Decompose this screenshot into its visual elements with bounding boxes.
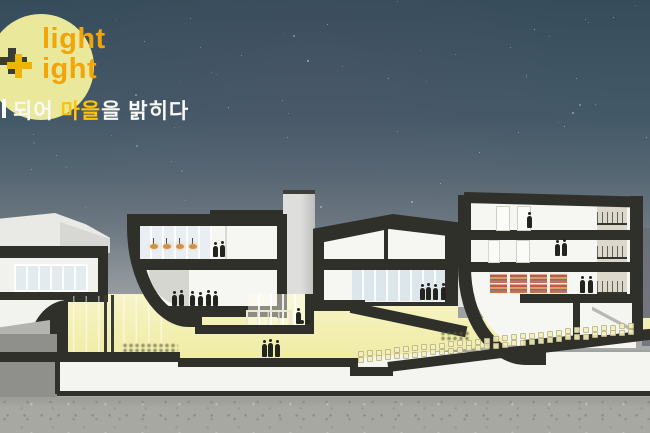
seat	[493, 336, 499, 342]
left-elevation-roof-band	[0, 246, 108, 258]
seat	[565, 334, 571, 340]
balcony-rail-1	[597, 212, 627, 225]
star	[342, 66, 343, 67]
building-d-door-4	[488, 240, 500, 263]
balcony-rail-3	[597, 281, 627, 294]
star	[282, 100, 283, 101]
arch-pier-dark	[0, 334, 57, 397]
star	[200, 47, 201, 48]
bookshelf	[509, 272, 528, 294]
star	[178, 33, 179, 34]
seat	[448, 341, 454, 347]
person-silhouette	[588, 280, 593, 293]
star	[572, 112, 574, 114]
star	[579, 104, 581, 106]
person-silhouette	[213, 295, 218, 306]
person-silhouette	[179, 294, 184, 306]
seat	[574, 327, 580, 333]
courtyard-upper-slab	[195, 325, 313, 334]
building-b-top-window-band	[140, 226, 212, 259]
seat	[484, 338, 490, 344]
star	[327, 24, 328, 25]
seat	[538, 338, 544, 344]
left-ground-slab	[0, 352, 180, 362]
building-c-mid-slab	[324, 259, 446, 270]
star	[288, 113, 289, 114]
concrete-ground	[0, 397, 650, 433]
seat	[475, 339, 481, 345]
tagline-prefix: 되어	[13, 100, 60, 123]
seat	[412, 352, 418, 358]
star	[455, 54, 456, 55]
pendant-lamp	[150, 244, 158, 249]
seat	[520, 333, 526, 339]
left-room-frame-2	[111, 295, 114, 353]
seat	[556, 330, 562, 336]
star	[420, 50, 421, 51]
person-silhouette	[275, 344, 280, 357]
seat	[583, 334, 589, 340]
seat	[628, 329, 634, 335]
seat	[592, 326, 598, 332]
star	[576, 78, 577, 79]
seat	[439, 349, 445, 355]
building-d-slab-2	[470, 262, 632, 272]
seat	[394, 347, 400, 353]
star	[397, 1, 398, 2]
plus-icon-yellow-v	[15, 54, 22, 78]
star	[216, 74, 217, 75]
seat	[421, 344, 427, 350]
seat	[430, 344, 436, 350]
person-silhouette	[220, 245, 225, 257]
person-silhouette	[198, 296, 203, 306]
building-d-door-1	[496, 206, 510, 231]
star	[307, 60, 309, 62]
seat	[412, 345, 418, 351]
star	[144, 41, 145, 42]
star	[211, 72, 212, 73]
seat	[538, 332, 544, 338]
star	[115, 19, 116, 20]
seat	[565, 328, 571, 334]
seat	[619, 323, 625, 329]
pendant-lamp	[163, 244, 171, 249]
person-silhouette	[172, 295, 177, 306]
seat	[547, 337, 553, 343]
star	[526, 75, 527, 76]
seat	[628, 323, 634, 329]
star	[241, 55, 242, 56]
seat	[529, 339, 535, 345]
left-room-frame-1	[104, 295, 107, 353]
seat	[367, 350, 373, 356]
star	[510, 47, 511, 48]
building-b-mid-slab	[140, 259, 277, 270]
building-b-roof-slab	[133, 214, 287, 226]
seat	[403, 353, 409, 359]
seat	[439, 343, 445, 349]
left-bridge-ribbon-window	[14, 264, 88, 292]
left-elevation-right-wall	[98, 246, 108, 302]
star	[190, 18, 191, 19]
seat	[385, 349, 391, 355]
person-silhouette	[555, 244, 560, 256]
seat	[601, 325, 607, 331]
seat	[466, 340, 472, 346]
person-silhouette	[268, 343, 273, 357]
tagline-suffix: 을 밝히다	[101, 100, 189, 123]
star	[595, 104, 596, 105]
courtyard-basement-slab	[178, 358, 356, 367]
seat	[619, 330, 625, 336]
seat	[520, 340, 526, 346]
star	[228, 107, 229, 108]
star	[426, 81, 427, 82]
balcony-rail-2	[597, 246, 627, 259]
seat	[394, 353, 400, 359]
building-d-door-3	[516, 240, 530, 263]
star	[526, 77, 527, 78]
star	[293, 35, 295, 37]
person-silhouette	[420, 288, 425, 300]
seat	[556, 336, 562, 342]
logo-text-line2: ight	[42, 56, 97, 83]
star	[588, 22, 589, 23]
person-silhouette	[262, 344, 267, 357]
star	[179, 81, 180, 82]
star	[534, 29, 535, 30]
pendant-lamp	[176, 244, 184, 249]
tagline-highlight: 마을	[60, 100, 101, 123]
seat	[610, 325, 616, 331]
seat	[457, 340, 463, 346]
background-tower	[283, 190, 315, 304]
person-silhouette	[441, 287, 446, 300]
bookshelf	[529, 272, 548, 294]
tagline-cutoff-character	[2, 99, 6, 118]
person-silhouette	[562, 243, 567, 256]
bookshelf	[549, 272, 568, 294]
seat	[583, 327, 589, 333]
seat	[403, 346, 409, 352]
seat	[502, 335, 508, 341]
person-silhouette	[213, 246, 218, 257]
person-silhouette	[190, 295, 195, 306]
tagline: 되어 마을을 밝히다	[13, 95, 189, 125]
seat	[448, 348, 454, 354]
seat	[457, 347, 463, 353]
seat	[529, 333, 535, 339]
seat	[547, 331, 553, 337]
seat	[367, 356, 373, 362]
cart-wheel	[306, 320, 310, 324]
cart-wheel	[300, 320, 304, 324]
seat	[511, 334, 517, 340]
star	[284, 32, 285, 33]
pendant-lamp	[189, 244, 197, 249]
star	[635, 5, 636, 6]
seat	[511, 340, 517, 346]
star	[613, 17, 614, 18]
building-b-wall-stub	[225, 226, 227, 259]
person-silhouette	[527, 216, 532, 228]
seat	[475, 345, 481, 351]
seat	[574, 334, 580, 340]
seat	[358, 357, 364, 363]
seat	[376, 350, 382, 356]
seat	[421, 351, 427, 357]
seat	[601, 331, 607, 337]
seat	[358, 351, 364, 357]
person-silhouette	[206, 294, 211, 306]
logo-text-line1: light	[42, 26, 106, 53]
architectural-night-section-poster: light ight 되어 마을을 밝히다	[0, 0, 650, 433]
seat	[493, 343, 499, 349]
person-silhouette	[426, 287, 431, 300]
building-d-slab-1	[470, 230, 632, 240]
star	[549, 36, 550, 37]
building-c-glass-band	[352, 270, 445, 301]
person-silhouette	[433, 288, 438, 300]
seat	[592, 332, 598, 338]
seat	[502, 342, 508, 348]
person-silhouette	[580, 280, 585, 293]
star	[388, 78, 389, 79]
bookshelf	[489, 272, 508, 294]
basement-bottom-line	[0, 391, 650, 396]
star	[585, 19, 586, 20]
